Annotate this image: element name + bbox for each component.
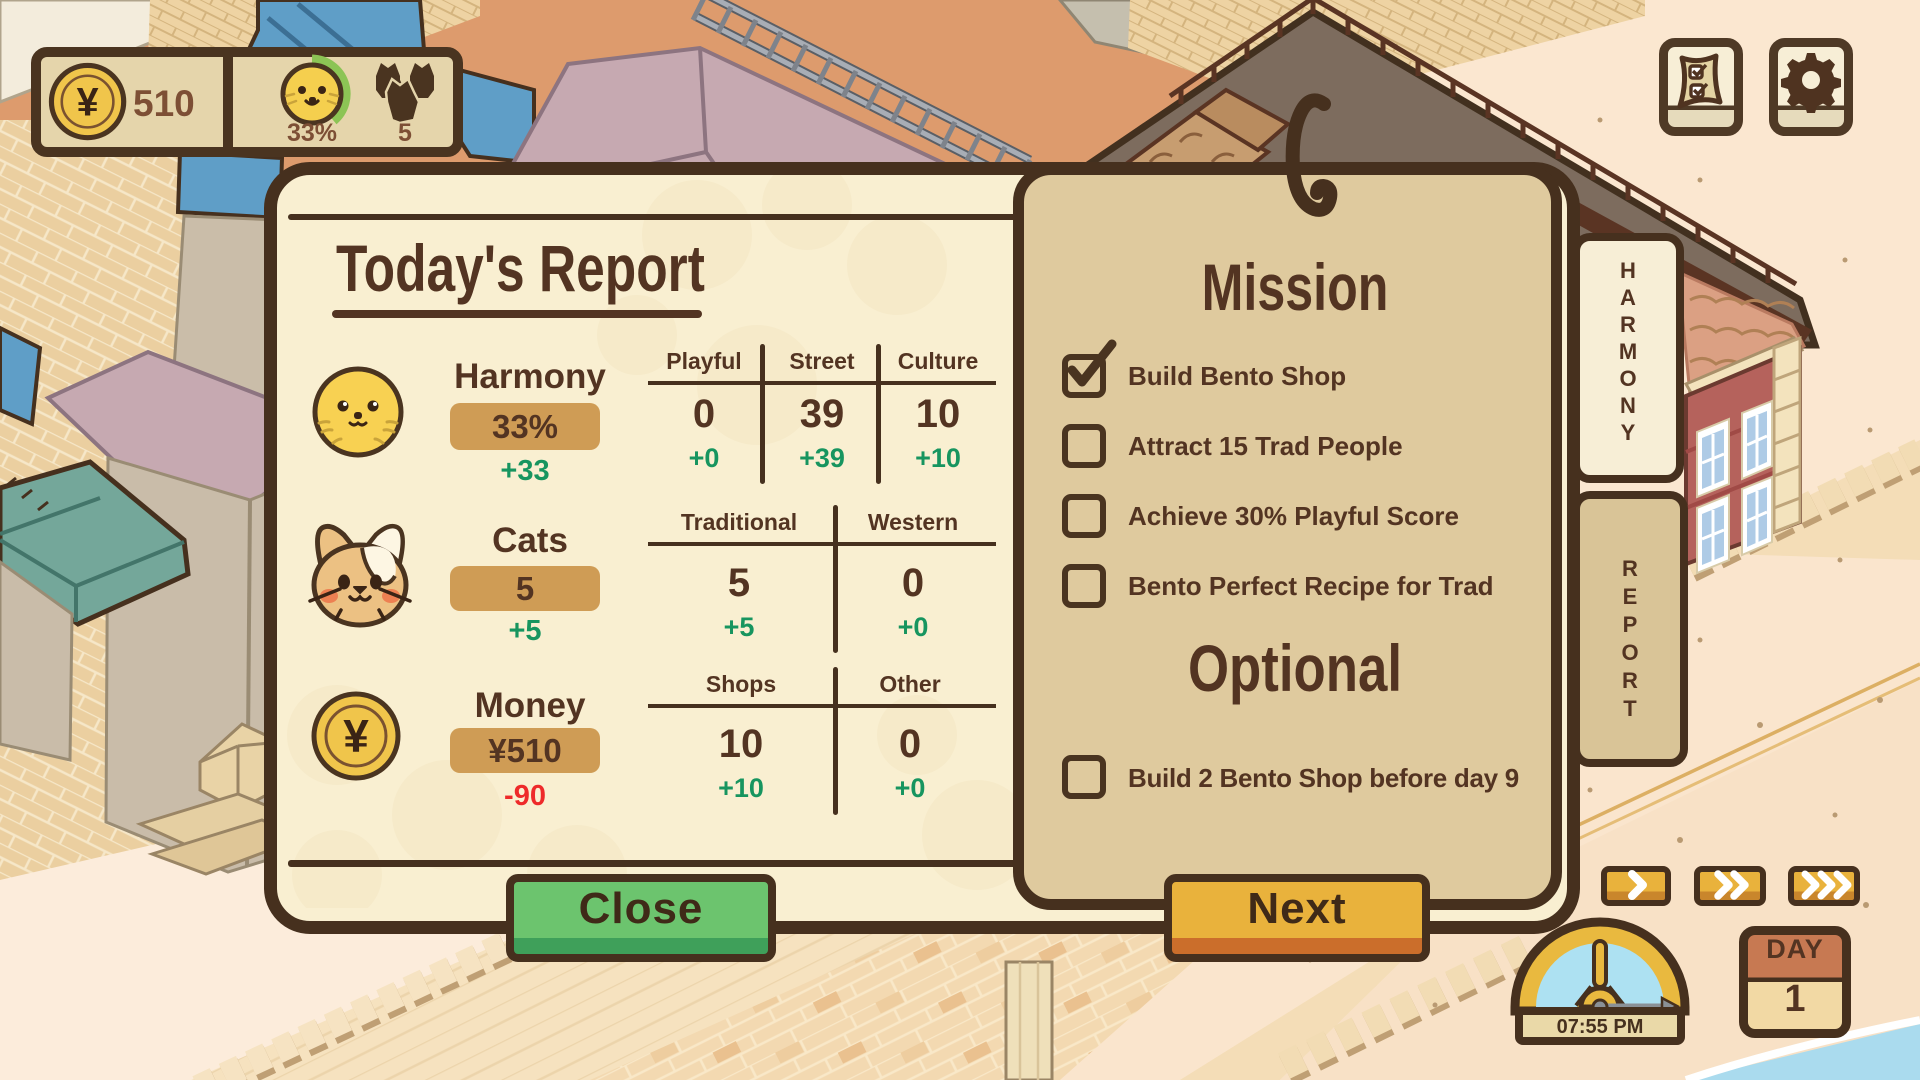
svg-text:¥: ¥ xyxy=(77,80,99,124)
svg-text:¥: ¥ xyxy=(343,710,369,762)
svg-text:07:55 PM: 07:55 PM xyxy=(1557,1016,1644,1038)
